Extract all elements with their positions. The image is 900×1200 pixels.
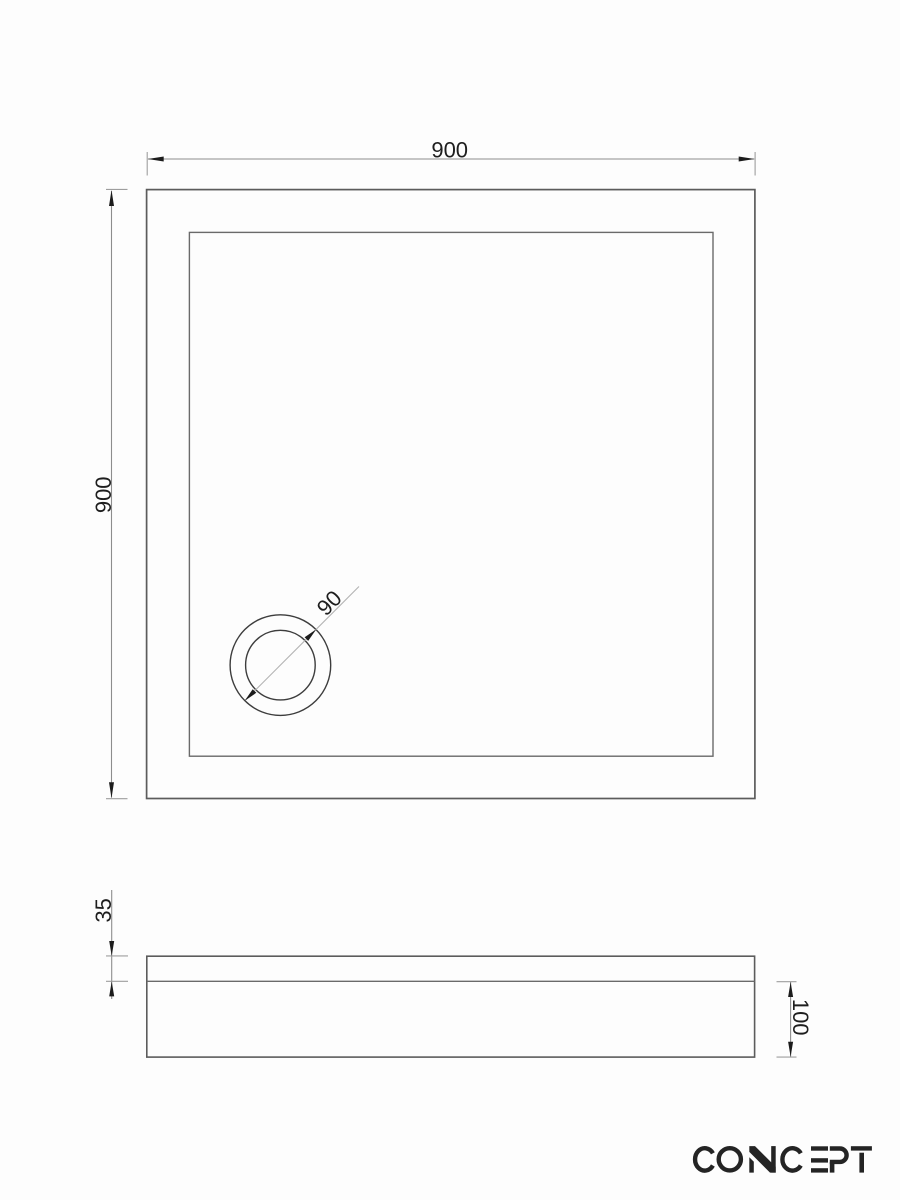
svg-text:100: 100 bbox=[788, 999, 813, 1036]
svg-text:90: 90 bbox=[312, 586, 347, 621]
svg-text:900: 900 bbox=[431, 138, 468, 163]
svg-text:35: 35 bbox=[91, 898, 116, 922]
svg-text:900: 900 bbox=[91, 476, 116, 513]
